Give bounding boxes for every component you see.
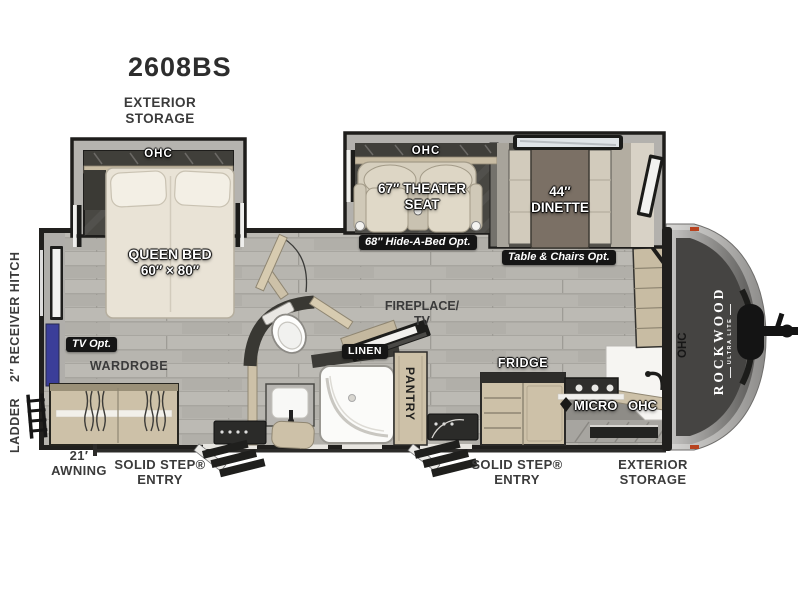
front-ohc-label: OHC [677, 314, 691, 358]
queen-bed-name: QUEEN BED [106, 246, 234, 263]
floorplan-canvas: 2608BS EXTERIOR STORAGE OHC QUEEN BED 60… [0, 0, 800, 600]
linen-badge: LINEN [342, 344, 388, 359]
bath-wall-window2-icon [342, 445, 382, 450]
brand-logo: ROCKWOOD ULTRA LITE [711, 283, 733, 399]
hitch-icon [737, 304, 798, 360]
exterior-storage-rear-label: EXTERIOR STORAGE [100, 95, 220, 127]
dinette-name: DINETTE [528, 200, 592, 216]
range-icon [558, 378, 624, 400]
bath-stool [271, 421, 314, 449]
theater-line2: SEAT [362, 197, 482, 213]
entry-front-label: SOLID STEP® ENTRY [467, 457, 567, 488]
tv-mount [46, 324, 59, 386]
fireplace-line1: FIREPLACE/ [380, 299, 464, 314]
exterior-storage-front-label: EXTERIOR STORAGE [598, 457, 708, 488]
fridge-icon [481, 373, 565, 445]
brand-name: ROCKWOOD [711, 283, 727, 399]
micro-label: MICRO [574, 398, 617, 413]
hide-a-bed-badge: 68″ Hide-A-Bed Opt. [359, 235, 477, 250]
theater-window-icon [347, 150, 351, 202]
wardrobe-label: WARDROBE [86, 359, 172, 374]
bedroom-window-left-icon [73, 205, 77, 247]
dinette-size: 44″ [528, 184, 592, 200]
marker-light-top-icon [690, 227, 699, 231]
storage-compartment [566, 420, 667, 442]
kitchen-ohc-label: OHC [628, 398, 657, 413]
marker-light-bottom-icon [690, 445, 699, 449]
ladder-icon [26, 393, 48, 438]
queen-bed-icon [106, 168, 234, 318]
entry-mat-rear [214, 421, 266, 444]
theater-line1: 67″ THEATER [362, 181, 482, 197]
bedroom-ohc-label: OHC [84, 148, 233, 162]
bedroom-window-right-icon [241, 203, 245, 247]
queen-bed-size: 60″ × 80″ [106, 263, 234, 279]
entry-mat-front [428, 414, 478, 440]
model-label: 2608BS [128, 52, 232, 84]
living-ohc-label: OHC [355, 145, 497, 159]
nightstand-left [84, 170, 106, 210]
pantry-label: PANTRY [403, 367, 417, 433]
fireplace-tv-label: FIREPLACE/ TV [380, 299, 464, 329]
fireplace-line2: TV [380, 314, 464, 329]
dinette-label: 44″ DINETTE [528, 184, 592, 216]
front-wall [662, 227, 672, 451]
tv-opt-badge: TV Opt. [66, 337, 117, 352]
fridge-label: FRIDGE [481, 356, 565, 371]
receiver-hitch-label: 2″ RECEIVER HITCH [8, 242, 23, 382]
shower-icon [320, 366, 394, 443]
table-chairs-badge: Table & Chairs Opt. [502, 250, 616, 265]
vanity-sink-icon [266, 384, 314, 426]
dinette-bench-right [589, 150, 611, 244]
brand-sub: ULTRA LITE [727, 283, 733, 399]
theater-seat-label: 67″ THEATER SEAT [362, 181, 482, 213]
queen-bed-label: QUEEN BED 60″ × 80″ [106, 246, 234, 278]
ladder-label: LADDER [8, 389, 23, 453]
awning-label: 21′ AWNING [44, 448, 114, 479]
wardrobe-icon [50, 384, 178, 445]
rear-window-icon [40, 250, 43, 316]
entry-rear-label: SOLID STEP® ENTRY [110, 457, 210, 488]
